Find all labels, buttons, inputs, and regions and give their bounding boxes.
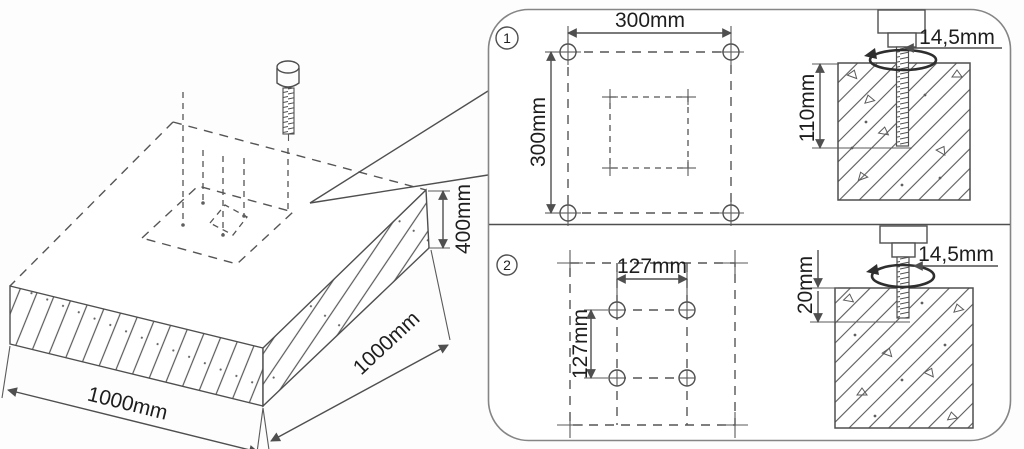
installation-diagram: 1000mm 1000mm 400mm 1 [0, 0, 1024, 449]
embed-depth-label-2: 20mm [794, 256, 817, 314]
detail-panel: 1 [489, 9, 1011, 441]
bolt-diameter-label-1: 14,5mm [919, 26, 995, 49]
bolt-diameter-callout-1: 14,5mm [905, 26, 1002, 49]
bolt-diameter-label-2: 14,5mm [918, 243, 994, 266]
threaded-rod [897, 47, 909, 146]
bolt-diameter-callout-2: 14,5mm [914, 243, 998, 266]
installation-diagram-page: 1000mm 1000mm 400mm 1 [0, 0, 1024, 449]
pattern-height-label-2: 127mm [569, 309, 592, 379]
base-width-label: 1000mm [85, 383, 170, 425]
base-thickness-label: 400mm [452, 184, 475, 254]
embed-depth-label-1: 110mm [796, 74, 819, 142]
pattern-height-label-1: 300mm [527, 97, 550, 167]
base-depth-label: 1000mm [349, 307, 424, 380]
pattern-width-label-1: 300mm [615, 9, 685, 32]
pattern-width-label-2: 127mm [617, 255, 687, 278]
isometric-view: 1000mm 1000mm 400mm [2, 61, 475, 449]
base-thickness-dimension: 400mm [428, 184, 475, 254]
section-2-badge-label: 2 [503, 257, 511, 273]
section-1-badge-label: 1 [503, 30, 511, 46]
